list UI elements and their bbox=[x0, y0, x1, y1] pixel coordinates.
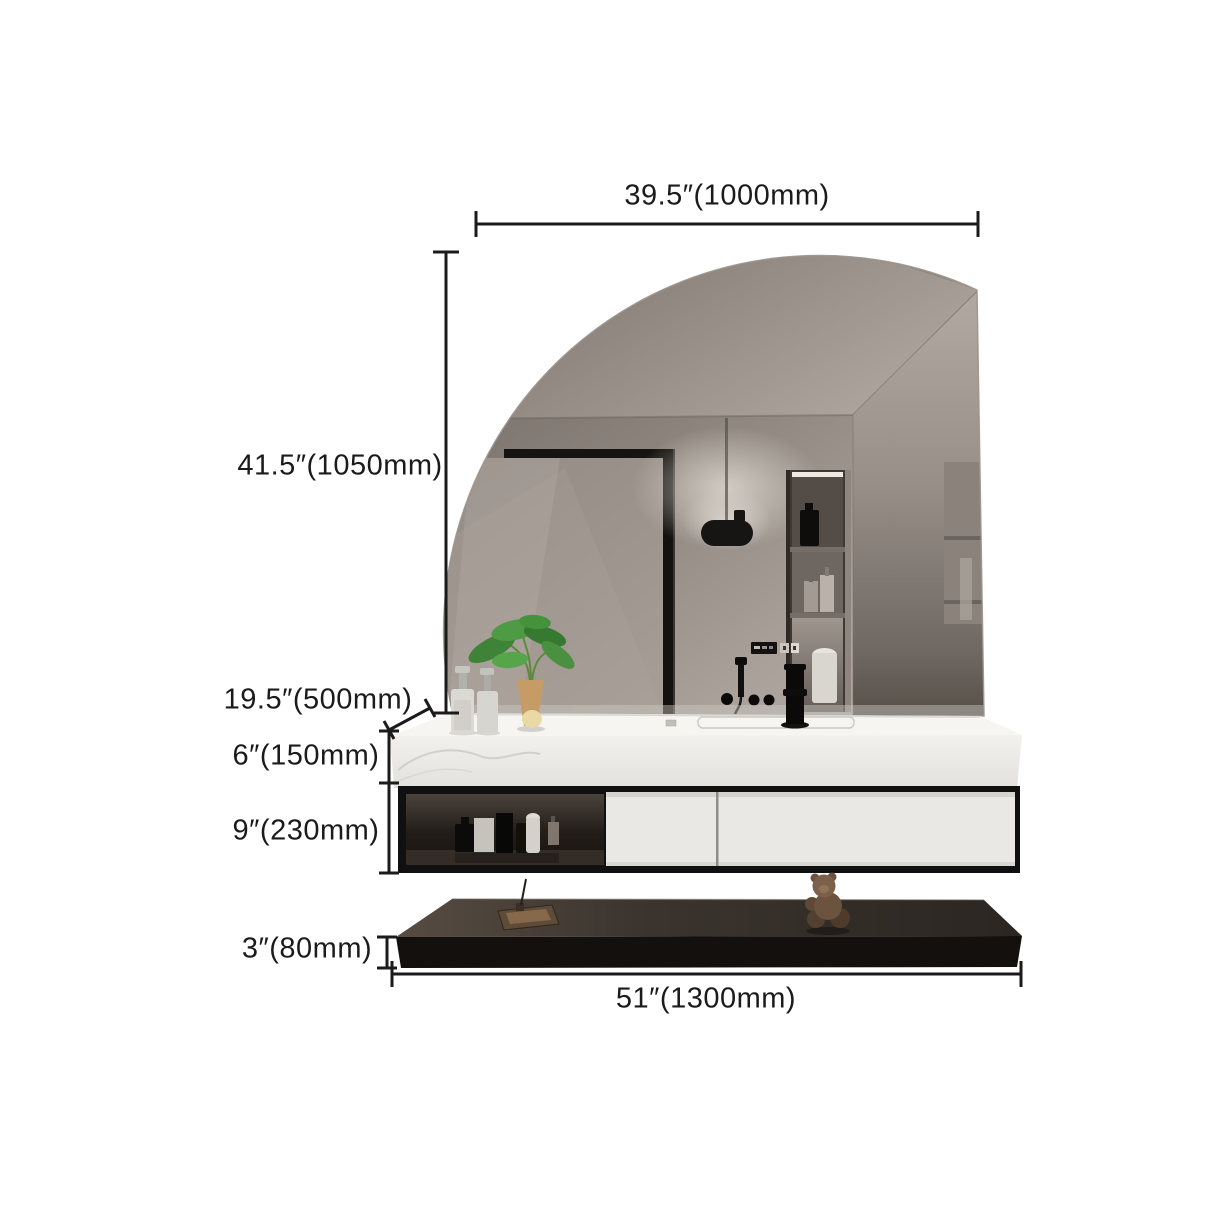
faucet-knob bbox=[721, 693, 733, 705]
perfume-bottle bbox=[455, 824, 475, 852]
black-bottle bbox=[496, 813, 513, 853]
dim-label-mirror-width: 39.5″(1000mm) bbox=[624, 180, 829, 213]
product-dimension-diagram: 39.5″(1000mm) 41.5″(1050mm) 19.5″(500mm)… bbox=[0, 0, 1214, 1214]
dim-label-cabinet-height: 9″(230mm) bbox=[233, 815, 380, 848]
dim-label-counter-depth: 19.5″(500mm) bbox=[224, 684, 413, 717]
niche-bottle bbox=[804, 581, 818, 612]
vase-base bbox=[522, 710, 542, 728]
hand-shower-wand bbox=[738, 664, 744, 697]
drawer-fronts bbox=[606, 792, 1015, 866]
dim-label-mirror-height: 41.5″(1050mm) bbox=[237, 450, 442, 483]
dim-label-shelf-thickness: 3″(80mm) bbox=[242, 933, 372, 966]
vanity-scene bbox=[0, 0, 1214, 1214]
roller-bottle bbox=[526, 818, 540, 853]
niche-candle bbox=[812, 653, 837, 703]
dim-label-total-width: 51″(1300mm) bbox=[616, 983, 796, 1016]
floating-shelf bbox=[396, 873, 1022, 969]
shelf-top bbox=[396, 899, 1022, 937]
dim-line-cabinet-height bbox=[379, 783, 399, 873]
countertop-front bbox=[390, 735, 1022, 788]
vanity-cabinet bbox=[398, 786, 1020, 873]
shower-pipe bbox=[725, 418, 728, 520]
niche-dark-bottle bbox=[800, 510, 819, 546]
faucet-knob bbox=[764, 695, 775, 706]
dim-line-shelf-thickness bbox=[377, 937, 397, 968]
niche-right-partial bbox=[944, 462, 984, 624]
white-bottle bbox=[474, 818, 494, 852]
soap-bottle bbox=[477, 691, 498, 733]
niche-bottle bbox=[820, 575, 834, 612]
faucet-knob bbox=[749, 695, 760, 706]
drawer-divider bbox=[716, 792, 719, 866]
sink-drain bbox=[666, 720, 676, 726]
glass-perfume bbox=[548, 822, 559, 845]
item-reflections bbox=[455, 853, 559, 863]
hand-shower-head bbox=[735, 657, 747, 665]
shelf-front bbox=[396, 936, 1022, 968]
dim-line-mirror-width bbox=[476, 211, 978, 237]
dim-label-countertop-height: 6″(150mm) bbox=[233, 740, 380, 773]
